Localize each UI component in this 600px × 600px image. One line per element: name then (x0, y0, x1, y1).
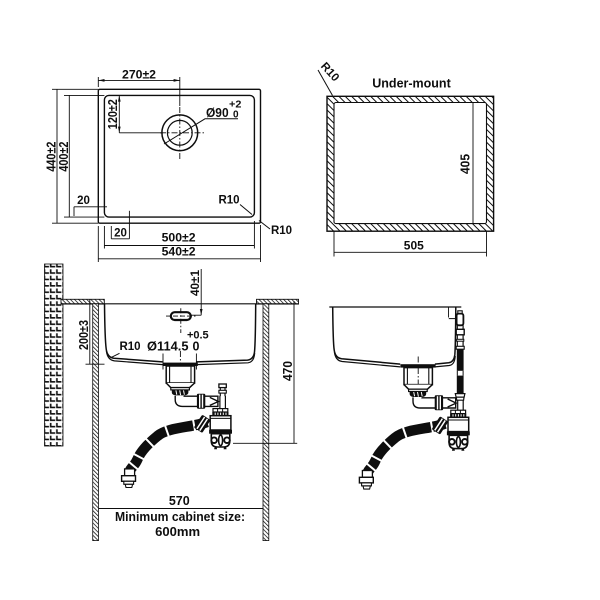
svg-text:120±2: 120±2 (105, 99, 120, 129)
svg-text:R10: R10 (218, 195, 239, 207)
svg-text:40±1: 40±1 (188, 270, 202, 296)
svg-text:505: 505 (404, 239, 424, 253)
svg-text:270±2: 270±2 (122, 68, 156, 82)
svg-text:0: 0 (193, 340, 200, 354)
svg-text:Ø90: Ø90 (206, 106, 229, 120)
svg-text:Ø114.5: Ø114.5 (147, 340, 189, 354)
svg-text:0: 0 (233, 109, 239, 120)
svg-text:+0.5: +0.5 (187, 330, 209, 342)
svg-text:570: 570 (169, 494, 190, 508)
svg-text:200±3: 200±3 (76, 320, 91, 350)
svg-text:Under-mount: Under-mount (372, 77, 451, 91)
svg-text:Minimum cabinet size:: Minimum cabinet size: (115, 510, 245, 524)
svg-text:470: 470 (280, 361, 295, 381)
svg-text:R10: R10 (271, 225, 292, 237)
svg-text:405: 405 (458, 154, 473, 174)
svg-text:400±2: 400±2 (56, 142, 71, 172)
svg-text:500±2: 500±2 (162, 231, 196, 245)
svg-text:R10: R10 (119, 341, 140, 353)
svg-text:20: 20 (77, 195, 90, 207)
svg-text:540±2: 540±2 (162, 244, 196, 258)
svg-text:600mm: 600mm (155, 525, 200, 539)
svg-text:20: 20 (114, 228, 127, 240)
